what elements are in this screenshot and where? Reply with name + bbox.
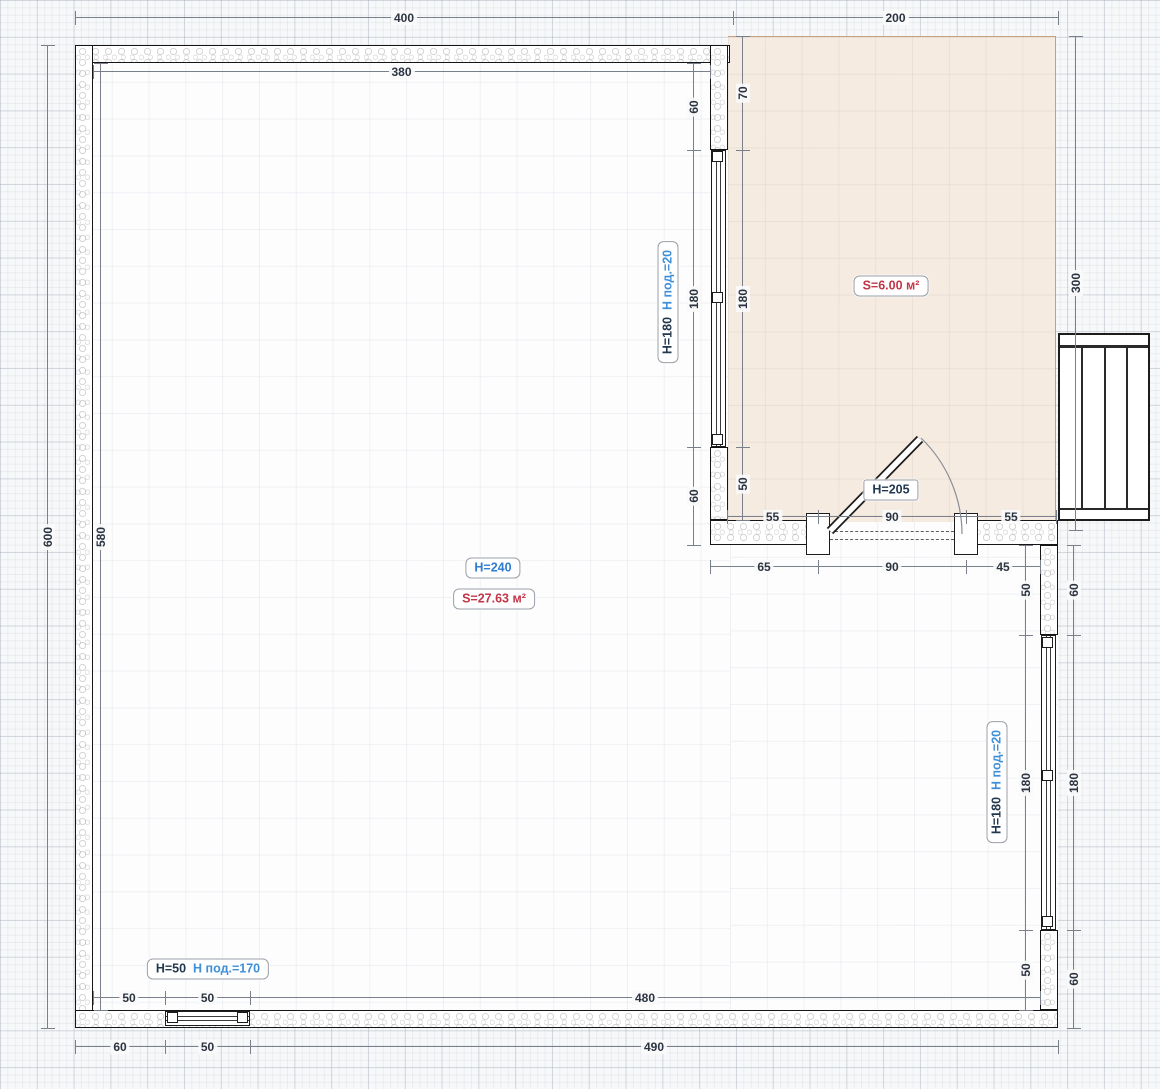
dim-right-inner-bottom: 50 — [1025, 930, 1026, 1010]
dim-right-outer-top: 60 — [1073, 545, 1074, 635]
dim-mid-main-bottom: 60 — [693, 447, 694, 545]
dim-top-outer-left: 400 — [75, 17, 733, 18]
dim-top-outer-right: 200 — [733, 17, 1058, 18]
wall-left[interactable] — [75, 45, 93, 1028]
dim-right-inner-window: 180 — [1025, 635, 1026, 930]
dim-door-bottom-mid: 90 — [818, 566, 966, 567]
dim-door-bottom-left: 65 — [710, 566, 818, 567]
wall-middle-upper[interactable] — [710, 45, 728, 150]
window-middle-sill: Н под.=20 — [661, 250, 675, 310]
window-bottom-sill: Н под.=170 — [193, 962, 260, 976]
dim-mid-hall-top: 70 — [742, 36, 743, 150]
floorplan-canvas: 400 200 380 55 90 55 65 90 45 50 50 480 … — [0, 0, 1160, 1089]
window-bottom-handle-right[interactable] — [237, 1012, 248, 1023]
main-room-area-tag[interactable]: S=27.63 м² — [453, 589, 535, 610]
window-middle-height: H=180 — [661, 317, 675, 354]
window-right[interactable] — [1041, 635, 1056, 930]
dim-bottom-inner-left: 50 — [93, 997, 165, 998]
window-bottom-height: H=50 — [156, 962, 186, 976]
dim-bottom-outer-window: 50 — [165, 1046, 250, 1047]
dim-door-top-mid: 90 — [818, 516, 966, 517]
dim-hall-right: 300 — [1075, 36, 1076, 530]
dim-bottom-inner-window: 50 — [165, 997, 250, 998]
dim-mid-main-top: 60 — [693, 63, 694, 150]
dim-door-bottom-right: 45 — [966, 566, 1040, 567]
window-right-handle-top[interactable] — [1042, 637, 1053, 648]
hall-room-area-tag[interactable]: S=6.00 м² — [854, 276, 929, 297]
main-room-area-right[interactable] — [730, 520, 1058, 1028]
window-middle-handle-bottom[interactable] — [712, 434, 723, 445]
dim-right-outer-window: 180 — [1073, 635, 1074, 930]
wall-right-lower[interactable] — [1040, 930, 1058, 1010]
stair-stringer — [1081, 345, 1083, 510]
dim-bottom-inner-right: 480 — [250, 997, 1040, 998]
dim-mid-hall-bottom: 50 — [742, 447, 743, 520]
dim-bottom-outer-right: 490 — [250, 1046, 1058, 1047]
wall-top[interactable] — [75, 45, 730, 63]
main-room-height-tag[interactable]: H=240 — [465, 558, 520, 579]
window-bottom-handle-left[interactable] — [167, 1012, 178, 1023]
window-bottom-tag[interactable]: H=50 Н под.=170 — [147, 959, 269, 980]
dim-door-top-right: 55 — [966, 516, 1056, 517]
stair-stringer — [1104, 345, 1106, 510]
window-middle-handle-top[interactable] — [712, 151, 723, 162]
window-middle-handle-mid[interactable] — [712, 292, 723, 303]
wall-right-upper[interactable] — [1040, 545, 1058, 635]
dim-door-top-left: 55 — [727, 516, 818, 517]
stairs[interactable] — [1058, 333, 1150, 521]
dim-right-outer-bottom: 60 — [1073, 930, 1074, 1028]
door-swing-arc — [921, 438, 962, 534]
dim-left-outer: 600 — [47, 45, 48, 1028]
window-right-height: H=180 — [990, 797, 1004, 834]
window-right-handle-mid[interactable] — [1042, 770, 1053, 781]
wall-middle-lower[interactable] — [710, 447, 728, 520]
window-right-handle-bottom[interactable] — [1042, 916, 1053, 927]
dim-right-inner-top: 50 — [1025, 545, 1026, 635]
window-middle-tag[interactable]: H=180 Н под.=20 — [658, 241, 679, 363]
window-right-tag[interactable]: H=180 Н под.=20 — [987, 721, 1008, 843]
dim-mid-hall-window: 180 — [742, 150, 743, 447]
main-room-area[interactable] — [75, 45, 730, 1028]
stair-stringer — [1126, 345, 1128, 510]
window-right-sill: Н под.=20 — [990, 730, 1004, 790]
dim-top-inner: 380 — [93, 71, 710, 72]
door-height-tag[interactable]: H=205 — [863, 480, 918, 501]
dim-mid-main-window: 180 — [693, 150, 694, 447]
dim-left-inner: 580 — [100, 63, 101, 1010]
dim-bottom-outer-left: 60 — [75, 1046, 165, 1047]
